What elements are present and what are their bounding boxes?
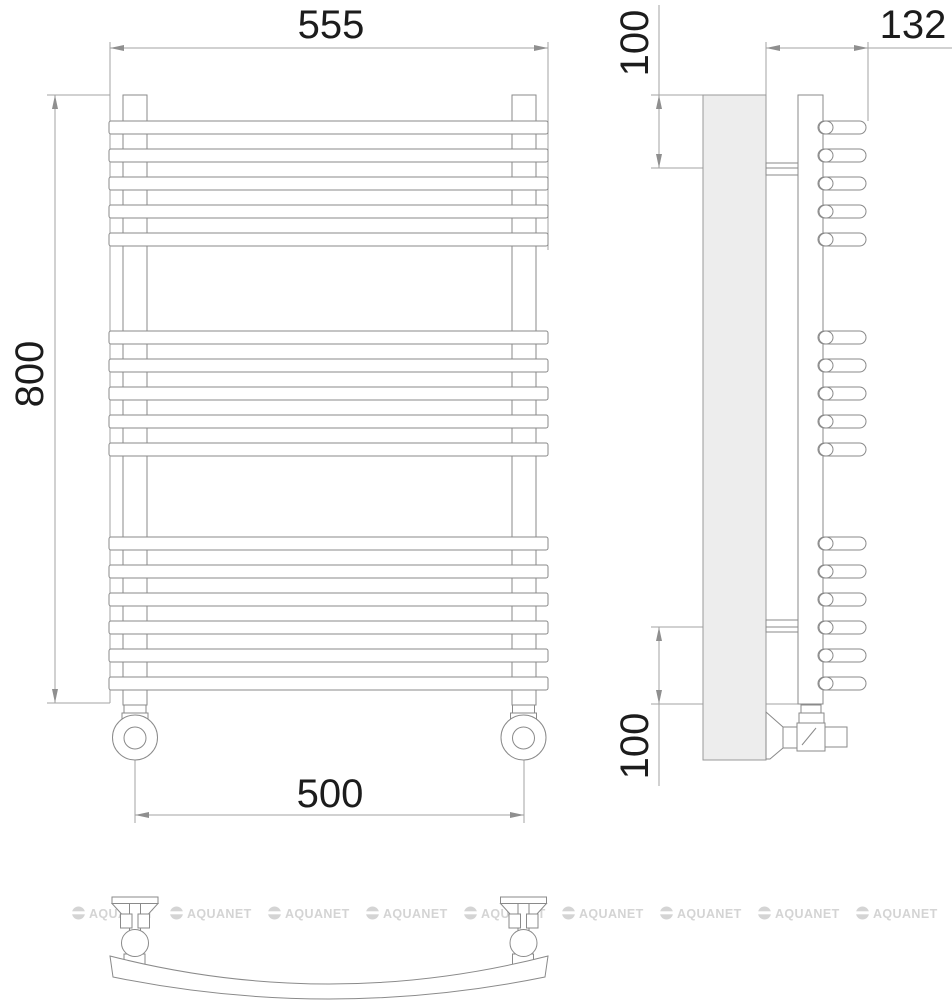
side-valve [766, 705, 847, 759]
bracket-collar [121, 914, 133, 928]
wall-bracket-top [766, 163, 798, 175]
watermark-text: AQUANET [677, 907, 742, 921]
dimension-arrowhead [135, 812, 149, 818]
dimension-arrowhead [52, 689, 58, 703]
brand-globe-stripe [464, 911, 478, 914]
dim-overall-height: 800 [8, 341, 52, 408]
valve-collar-small [801, 705, 821, 713]
dimension-arrowhead [52, 95, 58, 109]
watermark: AQUANET [758, 907, 840, 922]
post-circles-top-view [122, 930, 538, 957]
brand-globe-stripe [366, 911, 380, 914]
bracket-collar [527, 914, 539, 928]
side-rungs [818, 121, 866, 690]
rung-end-cap [819, 621, 833, 634]
watermark-text: AQUANET [775, 907, 840, 921]
watermark: AQUANET [562, 907, 644, 922]
watermark: AQUANET [268, 907, 350, 922]
curved-rail-top-view [110, 956, 548, 999]
brand-globe-stripe [758, 911, 772, 914]
rung-front [109, 649, 548, 662]
dimension-arrowhead [766, 45, 780, 51]
dimension-arrowhead [656, 95, 662, 109]
dimension-arrowhead [110, 45, 124, 51]
rung-end-cap [819, 537, 833, 550]
watermark: AQUANET [856, 907, 938, 922]
dimension-arrowhead [656, 690, 662, 704]
dim-connection-spacing: 500 [297, 772, 364, 816]
rung-end-cap [819, 415, 833, 428]
brand-globe-stripe [170, 911, 184, 914]
watermark: AQUANET [660, 907, 742, 922]
front-valves [113, 705, 547, 760]
towel-rail-drawing: AQUANETAQUANETAQUANETAQUANETAQUANETAQUAN… [0, 0, 952, 1000]
rung-front [109, 177, 548, 190]
watermark: AQUANET [366, 907, 448, 922]
rung-front [109, 387, 548, 400]
rung-end-cap [819, 443, 833, 456]
rung-front [109, 149, 548, 162]
rung-front [109, 233, 548, 246]
rung-end-cap [819, 387, 833, 400]
dimension-arrowhead [510, 812, 524, 818]
rung-end-cap [819, 205, 833, 218]
side-view [703, 95, 866, 760]
rung-front [109, 331, 548, 344]
rung-end-cap [819, 331, 833, 344]
brand-globe-stripe [72, 911, 86, 914]
rung-end-cap [819, 649, 833, 662]
watermark-text: AQUANET [285, 907, 350, 921]
valve-fitting [513, 705, 535, 713]
front-rungs [109, 121, 548, 690]
watermark: AQUANET [170, 907, 252, 922]
watermark-text: AQUANET [873, 907, 938, 921]
drawing-canvas: AQUANETAQUANETAQUANETAQUANETAQUANETAQUAN… [0, 0, 952, 1000]
rung-end-cap [819, 121, 833, 134]
dim-bracket-offset-bottom: 100 [613, 713, 657, 780]
brand-globe-stripe [660, 911, 674, 914]
valve-fitting [124, 705, 146, 713]
wall-plate-top-view [501, 897, 547, 904]
rung-end-cap [819, 233, 833, 246]
bracket-collar [509, 914, 521, 928]
rung-front [109, 621, 548, 634]
front-view [109, 95, 548, 760]
rung-end-cap [819, 177, 833, 190]
brand-globe-stripe [856, 911, 870, 914]
rung-front [109, 537, 548, 550]
rung-front [109, 565, 548, 578]
wall-bracket-bottom [766, 620, 798, 632]
dimension-arrowhead [534, 45, 548, 51]
dim-overall-width: 555 [298, 3, 365, 47]
rung-front [109, 593, 548, 606]
watermark-text: AQUANET [383, 907, 448, 921]
valve-collar-large [799, 713, 824, 723]
dimension-arrowhead [656, 154, 662, 168]
bracket-collar [138, 914, 150, 928]
rung-front [109, 443, 548, 456]
wall-plate-top-view [112, 897, 158, 904]
rung-end-cap [819, 565, 833, 578]
valve-body [797, 723, 825, 751]
dimension-arrowhead [656, 627, 662, 641]
wall-panel [703, 95, 766, 760]
rung-end-cap [819, 677, 833, 690]
brand-globe-stripe [562, 911, 576, 914]
post-circle-top-view [122, 930, 149, 957]
watermark-text: AQUANET [579, 907, 644, 921]
brand-globe-stripe [268, 911, 282, 914]
dim-depth: 132 [880, 3, 947, 47]
rung-front [109, 359, 548, 372]
rung-front [109, 677, 548, 690]
rung-end-cap [819, 359, 833, 372]
supply-escutcheon [766, 712, 783, 759]
rung-end-cap [819, 593, 833, 606]
post-circle-top-view [510, 930, 537, 957]
rung-front [109, 205, 548, 218]
valve-connector [783, 727, 797, 748]
valve-outlet [825, 727, 847, 747]
rung-front [109, 121, 548, 134]
valve-knob-inner [513, 727, 535, 749]
dimension-arrowhead [854, 45, 868, 51]
valve-knob-inner [124, 727, 146, 749]
rung-end-cap [819, 149, 833, 162]
dim-bracket-offset-top: 100 [613, 10, 657, 77]
watermark-text: AQUANET [187, 907, 252, 921]
rung-front [109, 415, 548, 428]
